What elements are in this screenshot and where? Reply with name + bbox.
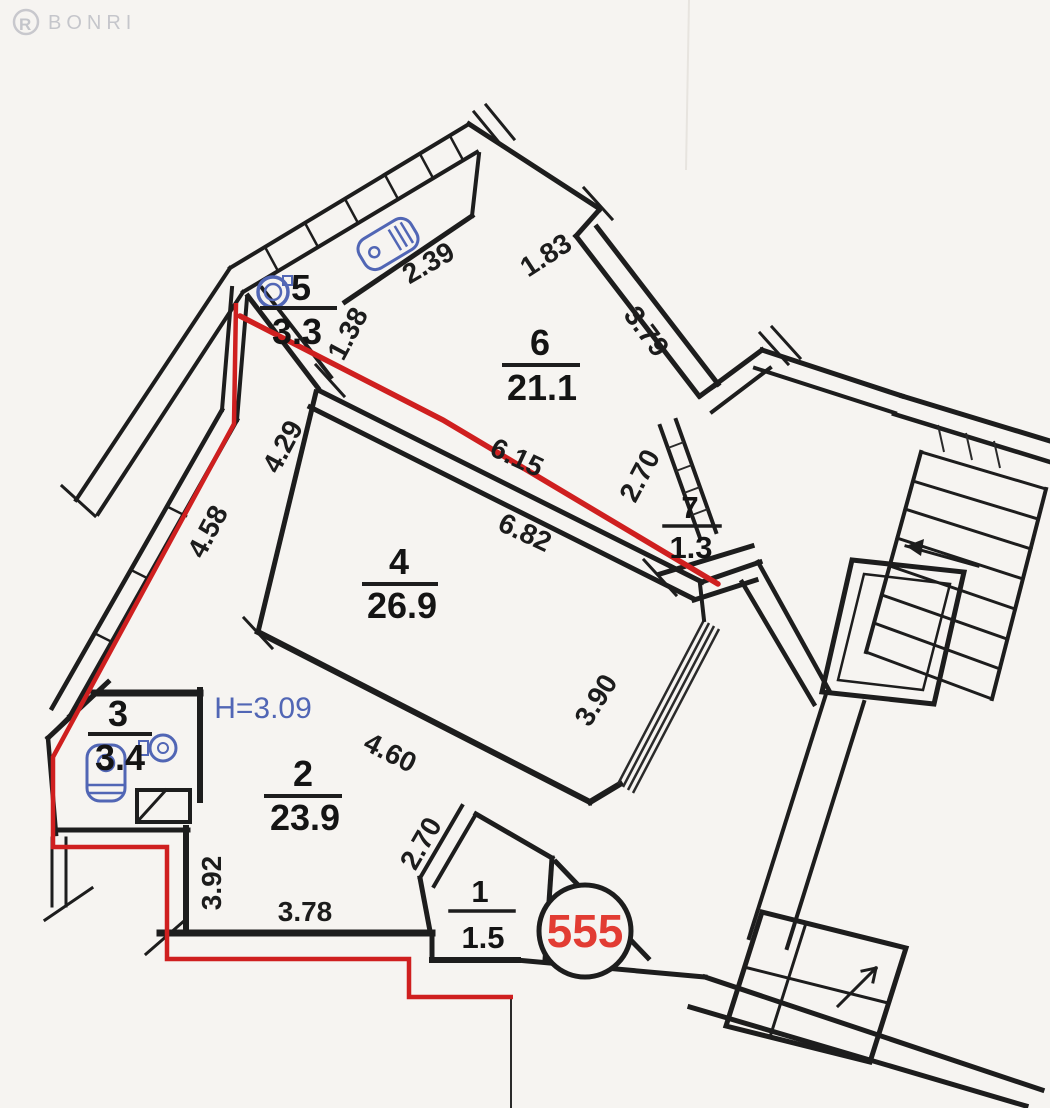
floorplan-scan: 555 5 3.3 6 21.1 7 1.3 4 26.9 3 3.4 xyxy=(0,0,1050,1108)
room-label-6: 6 21.1 xyxy=(504,322,578,408)
red-boundary-left xyxy=(53,303,513,997)
svg-text:1.5: 1.5 xyxy=(461,920,504,955)
dim-3-92: 3.92 xyxy=(196,856,227,911)
watermark: R BONRI xyxy=(14,10,136,34)
svg-text:26.9: 26.9 xyxy=(367,585,437,626)
unit-number: 555 xyxy=(547,905,624,957)
svg-text:6: 6 xyxy=(530,322,550,363)
ceiling-height-label: H=3.09 xyxy=(214,692,312,725)
dim-3-90: 3.90 xyxy=(568,669,623,732)
window-band-room4 xyxy=(618,620,719,793)
paper-crease xyxy=(686,0,689,170)
svg-text:5: 5 xyxy=(291,267,311,308)
watermark-text: BONRI xyxy=(48,12,136,34)
dim-1-83: 1.83 xyxy=(515,227,578,283)
svg-text:23.9: 23.9 xyxy=(270,797,340,838)
dim-1-38: 1.38 xyxy=(321,302,374,365)
svg-text:1: 1 xyxy=(471,874,488,909)
svg-text:3: 3 xyxy=(108,693,128,734)
svg-text:2: 2 xyxy=(293,753,313,794)
svg-text:3.3: 3.3 xyxy=(272,311,322,352)
dim-2-70-upper: 2.70 xyxy=(613,444,666,507)
dim-4-60: 4.60 xyxy=(359,726,422,778)
room-label-7: 7 1.3 xyxy=(664,490,720,565)
dim-6-82: 6.82 xyxy=(494,507,556,558)
svg-text:7: 7 xyxy=(681,490,698,525)
entrance-vestibule xyxy=(726,912,906,1062)
svg-text:21.1: 21.1 xyxy=(507,367,577,408)
svg-text:3.4: 3.4 xyxy=(95,737,145,778)
room-label-5: 5 3.3 xyxy=(262,267,335,352)
dim-3-78: 3.78 xyxy=(278,896,333,927)
dimension-labels: 2.39 1.83 3.79 1.38 4.29 4.58 6.15 6.82 … xyxy=(181,227,675,927)
svg-text:4: 4 xyxy=(389,541,409,582)
unit-number-badge: 555 xyxy=(539,885,631,977)
stairs xyxy=(866,452,1046,699)
room-label-3: 3 3.4 xyxy=(90,693,150,778)
red-boundary xyxy=(53,303,718,997)
room-label-2: 2 23.9 xyxy=(266,753,340,838)
watermark-logo-letter: R xyxy=(19,15,31,34)
svg-text:1.3: 1.3 xyxy=(669,530,712,565)
elevator-shaft xyxy=(822,560,964,704)
window-hatches-left xyxy=(94,507,186,642)
room-label-1: 1 1.5 xyxy=(450,874,514,955)
room-label-4: 4 26.9 xyxy=(364,541,437,626)
floorplan-drawing: 555 5 3.3 6 21.1 7 1.3 4 26.9 3 3.4 xyxy=(0,0,1050,1108)
